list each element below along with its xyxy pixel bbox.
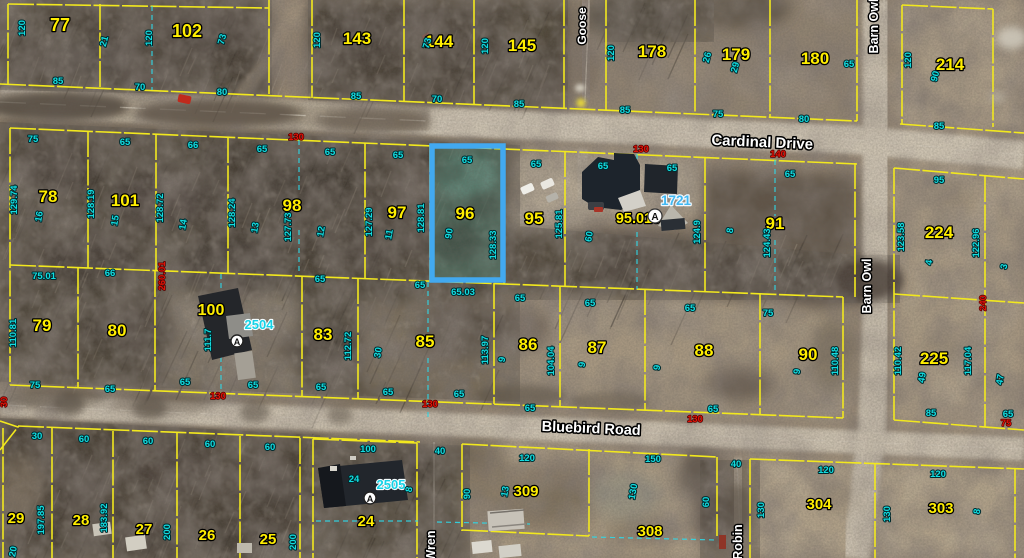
svg-text:80: 80 xyxy=(799,114,810,125)
svg-text:Barn Owl: Barn Owl xyxy=(867,0,881,53)
svg-text:65: 65 xyxy=(257,144,268,155)
svg-text:86: 86 xyxy=(519,335,538,354)
svg-text:30: 30 xyxy=(32,431,43,442)
svg-text:87: 87 xyxy=(588,338,607,357)
svg-text:30: 30 xyxy=(372,346,385,358)
svg-text:308: 308 xyxy=(637,523,662,540)
svg-text:80: 80 xyxy=(217,87,228,98)
svg-text:112.72: 112.72 xyxy=(343,332,354,361)
svg-text:28: 28 xyxy=(73,512,90,529)
svg-text:65: 65 xyxy=(1003,409,1014,420)
svg-text:129.74: 129.74 xyxy=(9,185,20,215)
svg-text:214: 214 xyxy=(936,55,965,74)
svg-text:30: 30 xyxy=(0,397,10,408)
svg-text:128.33: 128.33 xyxy=(488,230,499,259)
svg-text:70: 70 xyxy=(432,94,443,105)
svg-text:85: 85 xyxy=(53,76,64,87)
svg-text:117.04: 117.04 xyxy=(963,346,974,375)
svg-text:224: 224 xyxy=(925,223,954,242)
svg-text:Barn Owl: Barn Owl xyxy=(860,259,874,314)
svg-text:120: 120 xyxy=(606,45,617,61)
svg-text:16: 16 xyxy=(33,210,46,222)
svg-text:65.03: 65.03 xyxy=(451,287,475,298)
svg-text:13: 13 xyxy=(249,221,262,233)
svg-text:140: 140 xyxy=(770,149,786,160)
svg-text:85: 85 xyxy=(934,121,945,132)
svg-text:120: 120 xyxy=(903,52,914,68)
svg-text:125.81: 125.81 xyxy=(554,209,565,239)
svg-text:65: 65 xyxy=(315,274,326,285)
svg-text:128.19: 128.19 xyxy=(86,189,97,218)
svg-text:66: 66 xyxy=(188,140,199,151)
svg-text:12: 12 xyxy=(315,225,328,237)
svg-text:200: 200 xyxy=(288,534,299,550)
svg-text:85: 85 xyxy=(620,105,631,116)
svg-text:40: 40 xyxy=(731,459,742,470)
svg-text:128.81: 128.81 xyxy=(416,203,427,233)
svg-text:123.58: 123.58 xyxy=(896,222,907,251)
svg-text:75: 75 xyxy=(763,308,774,319)
svg-text:20: 20 xyxy=(7,545,20,557)
svg-text:65: 65 xyxy=(393,150,404,161)
svg-text:65: 65 xyxy=(785,169,796,180)
svg-text:65: 65 xyxy=(844,59,855,70)
svg-text:309: 309 xyxy=(513,483,538,500)
svg-text:130: 130 xyxy=(756,502,767,518)
svg-text:78: 78 xyxy=(39,187,58,206)
svg-text:85: 85 xyxy=(351,91,362,102)
svg-text:120: 120 xyxy=(818,465,834,476)
svg-text:65: 65 xyxy=(462,155,473,166)
svg-text:65: 65 xyxy=(708,404,719,415)
svg-text:26: 26 xyxy=(199,527,216,544)
svg-text:60: 60 xyxy=(79,434,90,445)
svg-text:65: 65 xyxy=(685,303,696,314)
svg-text:A: A xyxy=(234,337,241,347)
svg-text:Goose: Goose xyxy=(575,7,589,45)
svg-text:104.04: 104.04 xyxy=(546,346,557,376)
svg-text:65: 65 xyxy=(325,147,336,158)
svg-text:90: 90 xyxy=(799,345,818,364)
svg-text:24: 24 xyxy=(358,513,375,530)
svg-text:124.43: 124.43 xyxy=(762,228,773,257)
svg-text:100: 100 xyxy=(198,302,225,319)
svg-text:110.42: 110.42 xyxy=(893,347,904,376)
svg-text:240: 240 xyxy=(978,295,989,311)
svg-text:100: 100 xyxy=(360,444,376,455)
svg-text:2505: 2505 xyxy=(377,477,406,492)
svg-text:88: 88 xyxy=(695,341,714,360)
svg-text:80: 80 xyxy=(108,321,127,340)
svg-text:65: 65 xyxy=(515,293,526,304)
svg-text:225: 225 xyxy=(920,349,948,368)
svg-text:98: 98 xyxy=(283,196,302,215)
svg-text:65: 65 xyxy=(248,380,259,391)
svg-text:65: 65 xyxy=(105,384,116,395)
svg-text:130: 130 xyxy=(422,399,438,410)
svg-text:130: 130 xyxy=(687,414,703,425)
svg-text:113.97: 113.97 xyxy=(480,336,491,365)
svg-text:1721: 1721 xyxy=(661,193,692,208)
svg-text:Robin: Robin xyxy=(731,524,745,558)
svg-text:40: 40 xyxy=(435,446,446,457)
svg-text:65: 65 xyxy=(585,298,596,309)
svg-text:303: 303 xyxy=(928,500,953,517)
svg-text:75: 75 xyxy=(713,109,724,120)
svg-text:85: 85 xyxy=(514,99,525,110)
svg-text:70: 70 xyxy=(135,82,146,93)
svg-text:128.72: 128.72 xyxy=(155,193,166,222)
svg-text:120: 120 xyxy=(312,32,323,48)
svg-text:79: 79 xyxy=(33,316,52,335)
svg-text:110.48: 110.48 xyxy=(830,347,841,376)
svg-text:127.73: 127.73 xyxy=(283,212,294,241)
svg-text:85: 85 xyxy=(926,408,937,419)
svg-text:127.29: 127.29 xyxy=(364,207,375,236)
svg-text:65: 65 xyxy=(525,403,536,414)
svg-text:95: 95 xyxy=(525,209,544,228)
svg-text:65: 65 xyxy=(415,280,426,291)
svg-text:130: 130 xyxy=(882,506,893,522)
svg-text:111.7: 111.7 xyxy=(203,329,214,352)
svg-text:143: 143 xyxy=(343,29,371,48)
svg-text:150: 150 xyxy=(645,454,661,465)
svg-text:83: 83 xyxy=(314,325,333,344)
svg-text:65: 65 xyxy=(531,159,542,170)
svg-text:65: 65 xyxy=(316,382,327,393)
svg-text:60: 60 xyxy=(583,230,596,242)
svg-text:120: 120 xyxy=(144,30,155,46)
svg-text:178: 178 xyxy=(638,42,666,61)
svg-text:197.85: 197.85 xyxy=(36,505,47,535)
svg-text:Wren: Wren xyxy=(424,530,438,558)
svg-text:65: 65 xyxy=(120,137,131,148)
svg-text:27: 27 xyxy=(136,521,153,538)
svg-text:65: 65 xyxy=(180,377,191,388)
svg-text:25: 25 xyxy=(260,531,277,548)
svg-text:77: 77 xyxy=(50,15,70,35)
svg-text:A: A xyxy=(651,212,658,223)
svg-text:120: 120 xyxy=(480,38,491,54)
svg-text:145: 145 xyxy=(508,36,536,55)
svg-text:120: 120 xyxy=(17,20,28,36)
svg-text:47: 47 xyxy=(994,373,1007,385)
svg-text:29: 29 xyxy=(8,510,25,527)
svg-text:120: 120 xyxy=(519,453,535,464)
svg-text:75: 75 xyxy=(30,380,41,391)
svg-text:65: 65 xyxy=(667,163,678,174)
svg-text:60: 60 xyxy=(143,436,154,447)
svg-text:65: 65 xyxy=(598,161,609,172)
svg-text:49: 49 xyxy=(916,371,929,383)
svg-text:110.81: 110.81 xyxy=(8,318,19,347)
svg-text:200: 200 xyxy=(162,524,173,540)
svg-text:96: 96 xyxy=(456,204,475,223)
svg-text:75.01: 75.01 xyxy=(32,271,56,282)
svg-text:60: 60 xyxy=(265,442,276,453)
svg-text:85: 85 xyxy=(416,332,435,351)
svg-text:60: 60 xyxy=(701,497,712,508)
svg-text:13: 13 xyxy=(499,485,512,497)
svg-text:75: 75 xyxy=(28,134,39,145)
svg-text:120: 120 xyxy=(930,469,946,480)
svg-text:97: 97 xyxy=(388,203,407,222)
svg-text:260.01: 260.01 xyxy=(157,261,168,291)
svg-text:24: 24 xyxy=(349,474,360,485)
svg-text:A: A xyxy=(367,494,374,504)
svg-text:304: 304 xyxy=(806,496,832,513)
svg-text:130: 130 xyxy=(288,132,304,143)
svg-text:66: 66 xyxy=(105,268,116,279)
svg-text:102: 102 xyxy=(172,21,202,41)
svg-text:124.9: 124.9 xyxy=(692,220,703,244)
svg-text:65: 65 xyxy=(383,387,394,398)
svg-text:130: 130 xyxy=(210,391,226,402)
svg-text:90: 90 xyxy=(443,227,456,239)
svg-text:128.24: 128.24 xyxy=(227,198,238,228)
svg-text:122.96: 122.96 xyxy=(971,228,982,257)
svg-text:60: 60 xyxy=(205,439,216,450)
svg-text:95: 95 xyxy=(934,175,945,186)
svg-text:179: 179 xyxy=(722,45,750,64)
svg-text:90: 90 xyxy=(462,489,473,500)
svg-text:183.92: 183.92 xyxy=(99,503,110,532)
svg-text:65: 65 xyxy=(454,389,465,400)
svg-text:2504: 2504 xyxy=(245,317,275,332)
svg-text:180: 180 xyxy=(801,49,829,68)
svg-text:130: 130 xyxy=(633,144,649,155)
svg-text:101: 101 xyxy=(111,191,139,210)
